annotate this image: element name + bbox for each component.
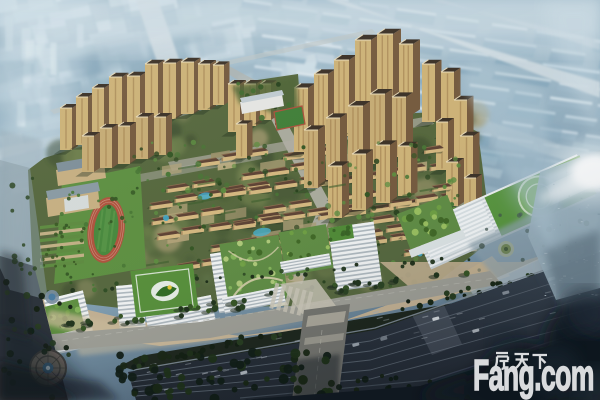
svg-text:Fang.com: Fang.com bbox=[473, 350, 594, 400]
